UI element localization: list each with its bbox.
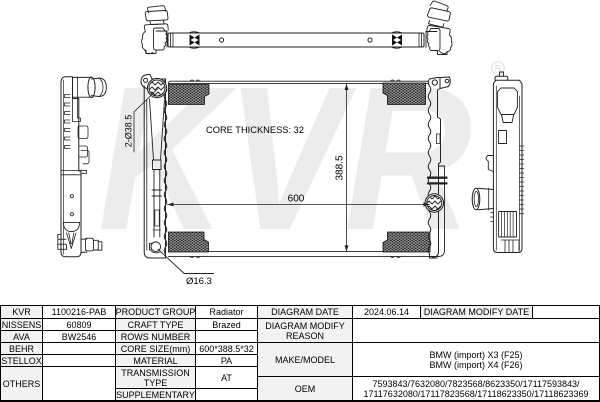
svg-text:2-Ø38.5: 2-Ø38.5 [124, 115, 134, 148]
svg-text:Ø16.3: Ø16.3 [186, 276, 212, 287]
svg-text:CORE THICKNESS: 32: CORE THICKNESS: 32 [206, 125, 304, 135]
svg-text:600: 600 [288, 194, 305, 205]
svg-text:388.5: 388.5 [335, 155, 346, 180]
